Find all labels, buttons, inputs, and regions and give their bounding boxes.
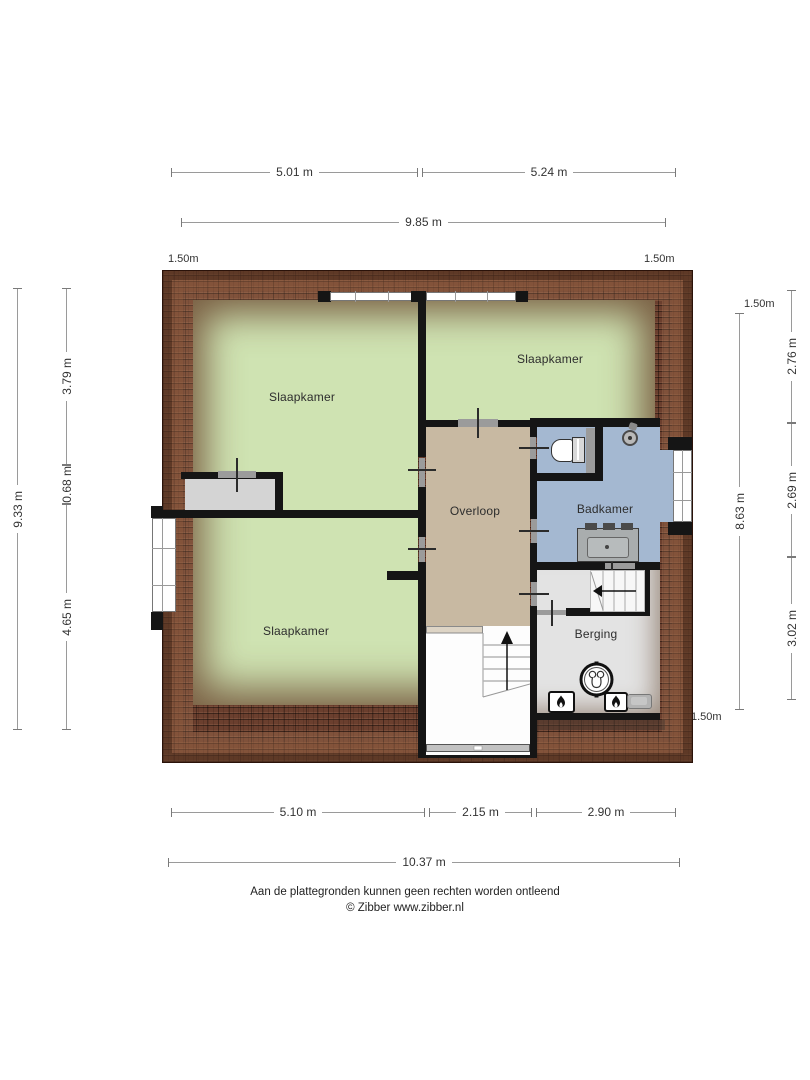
dim-left-segment-2: 0.68 m [60,465,73,504]
door-tick [519,593,549,595]
dim-tick [62,729,71,730]
window-tick [673,472,692,473]
dim-label: 9.85 m [399,216,448,229]
main-staircase-icon [426,626,530,758]
dim-line [430,812,456,813]
building-roof-outline: Slaapkamer Slaapkamer Slaapkamer Overloo… [163,271,692,762]
dim-line [791,653,792,699]
door-tick [519,530,549,532]
faucet-icon [621,523,633,530]
dim-line [66,401,67,464]
dim-bottom-segment-1: 5.10 m [171,806,425,819]
dim-line [17,289,18,485]
dim-line [66,505,67,593]
floorplan-canvas: 5.01 m 5.24 m 9.85 m 1.50m 1.50m 9.33 m … [0,0,810,1080]
dim-label: 2.90 m [582,806,631,819]
wall [537,562,660,570]
dim-line [172,812,274,813]
dim-line [739,314,740,487]
dim-line [791,514,792,556]
room-slaapkamer-bottom-left: Slaapkamer [193,518,418,705]
dim-line [791,424,792,466]
dim-right-segment-2: 2.69 m [785,423,798,557]
door-tick [519,447,549,449]
toilet-partition [586,428,595,473]
dim-right-segment-1: 2.76 m [785,290,798,423]
door-opening [419,458,425,487]
dim-label: 4.65 m [60,593,74,642]
dim-line [791,381,792,422]
closet [185,478,276,510]
room-label: Berging [575,627,618,641]
dim-line [169,862,396,863]
wall [668,522,692,535]
dim-line [537,812,582,813]
shower-head-icon [622,430,638,446]
wall [516,291,528,302]
door-opening [605,563,635,569]
dim-label: 2.15 m [456,806,505,819]
dim-label: 2.69 m [785,466,799,515]
room-overloop: Overloop [426,427,530,626]
height-marker-bottom-right: 1.50m [691,711,722,723]
dim-line [319,172,417,173]
wall [537,713,660,720]
dim-left-segment-1: 3.79 m [60,288,73,465]
dim-tick [735,709,744,710]
dim-right-segment-3: 3.02 m [785,557,798,700]
room-label: Slaapkamer [263,624,329,638]
window-mullion [682,450,683,522]
wall-shadow [537,720,665,730]
dim-top-total: 9.85 m [181,216,666,229]
faucet-icon [603,523,615,530]
berging-stairs-icon [590,570,645,612]
door-opening [419,537,425,562]
left-wall-window [152,518,176,612]
dim-top-segment-2: 5.24 m [422,166,676,179]
vanity-icon [577,528,639,562]
dim-bottom-segment-3: 2.90 m [536,806,676,819]
dim-label: 3.79 m [60,352,74,401]
wall [530,606,537,758]
dim-line [66,289,67,352]
wall [151,612,163,630]
dim-tick [787,699,796,700]
dim-bottom-segment-2: 2.15 m [429,806,532,819]
dim-tick [424,808,425,817]
dim-bottom-total: 10.37 m [168,856,680,869]
window-tick [388,291,389,302]
dormer-window-left [330,292,412,301]
dim-label: 9.33 m [11,485,25,534]
window-mullion [162,518,163,612]
faucet-icon [585,523,597,530]
room-label: Overloop [450,504,500,518]
dim-line [448,222,665,223]
wall [668,437,692,450]
window-tick [152,585,176,586]
expansion-vessel-icon [627,694,652,709]
toilet-cistern-icon [572,437,585,463]
dim-line [423,172,525,173]
room-label: Slaapkamer [269,390,335,404]
dim-line [452,862,679,863]
height-marker-top-right: 1.50m [644,253,675,265]
dim-label: 5.24 m [525,166,574,179]
wall [530,459,537,519]
footer: Aan de plattegronden kunnen geen rechten… [0,884,810,916]
toilet-icon [551,439,573,462]
dim-tick [675,808,676,817]
height-marker-right-top: 1.50m [744,298,775,310]
door-tick [408,548,436,550]
footer-disclaimer: Aan de plattegronden kunnen geen rechten… [0,884,810,900]
dim-tick [679,858,680,867]
dim-label: 2.76 m [785,332,799,381]
dim-line [791,558,792,604]
dim-tick [531,808,532,817]
window-tick [673,500,692,501]
heater-icon [604,692,628,712]
wall [151,506,163,518]
door-tick [551,600,553,626]
dim-label: 3.02 m [785,604,799,653]
dim-line [66,641,67,729]
dim-line [630,812,675,813]
dim-right-total: 8.63 m [733,313,746,710]
dim-label: 0.68 m [60,466,74,503]
dim-label: 8.63 m [733,487,747,536]
dim-line [182,222,399,223]
dim-line [505,812,531,813]
dim-line [322,812,424,813]
door-tick [236,458,238,492]
wall [537,473,603,481]
dim-line [573,172,675,173]
door-tick [408,469,436,471]
room-slaapkamer-top-right: Slaapkamer [426,300,655,420]
room-label: Slaapkamer [517,352,583,366]
dim-tick [13,729,22,730]
dim-line [791,291,792,332]
wall [418,302,426,457]
height-marker-top-left: 1.50m [168,253,199,265]
dim-label: 10.37 m [396,856,451,869]
wall [152,510,426,518]
dim-label: 5.01 m [270,166,319,179]
room-label: Badkamer [577,502,633,516]
window-tick [152,548,176,549]
window-tick [355,291,356,302]
dim-line [172,172,270,173]
footer-credit: © Zibber www.zibber.nl [0,900,810,916]
door-tick [477,408,479,438]
wall-stub [387,571,418,580]
dim-line [739,536,740,709]
window-tick [455,291,456,302]
dim-left-total: 9.33 m [11,288,24,730]
dim-top-segment-1: 5.01 m [171,166,418,179]
wall [530,543,537,582]
dim-left-segment-3: 4.65 m [60,504,73,730]
wall [418,562,426,758]
dim-line [17,533,18,729]
window-tick [487,291,488,302]
dormer-window-right [426,292,516,301]
dim-tick [417,168,418,177]
room-badkamer-window-bay [657,450,674,522]
heater-icon [548,691,575,713]
dim-tick [675,168,676,177]
wall [411,291,426,302]
dim-tick [665,218,666,227]
dim-label: 5.10 m [274,806,323,819]
